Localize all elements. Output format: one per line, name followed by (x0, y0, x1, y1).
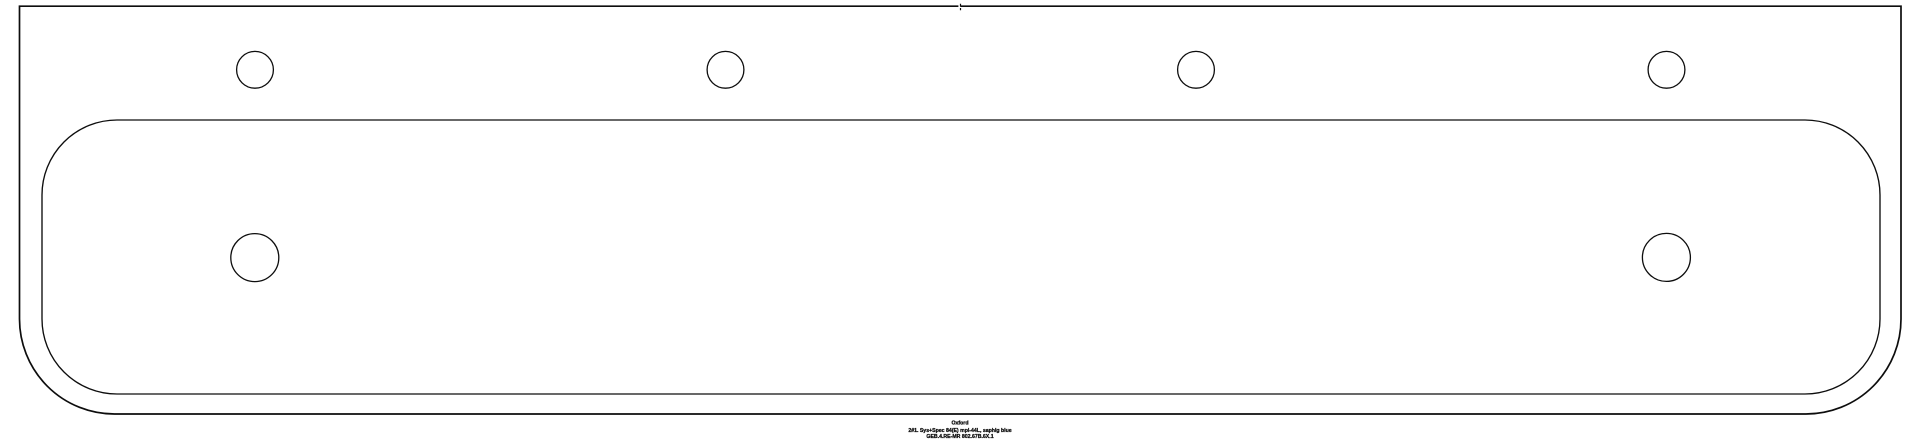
svg-text:GEB.4.RE-MR 802.67B.6X.1: GEB.4.RE-MR 802.67B.6X.1 (926, 434, 993, 440)
svg-text:Oxford: Oxford (951, 421, 968, 427)
